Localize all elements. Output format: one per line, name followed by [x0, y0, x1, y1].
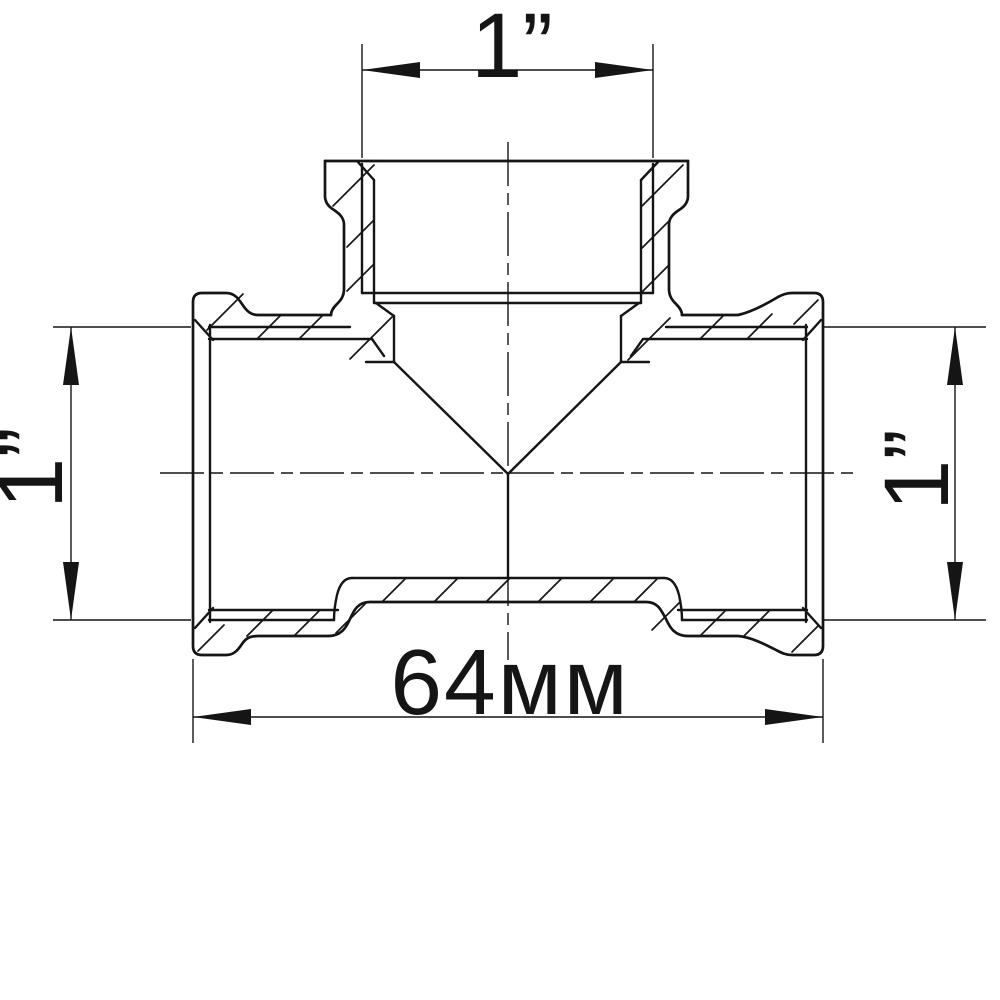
left-arrow-top — [63, 327, 79, 385]
bottom-arrow-left — [193, 709, 251, 725]
top-mouth-chamfer-left — [357, 161, 374, 180]
left-arrow-bottom — [63, 562, 79, 620]
left-dimension-label: 1” — [0, 427, 82, 509]
centerlines — [160, 142, 854, 660]
cone-right — [508, 362, 621, 474]
bottom-arrow-right — [765, 709, 823, 725]
floor-transition-left — [334, 578, 352, 620]
right-dimension-label: 1” — [866, 429, 968, 511]
top-socket-right-wall — [669, 161, 688, 315]
dimension-bottom: 64мм — [193, 630, 823, 743]
bottom-dimension-label: 64мм — [390, 630, 629, 734]
right-arrow-bottom — [947, 562, 963, 620]
floor-transition-right — [664, 578, 682, 620]
right-arrow-top — [947, 327, 963, 385]
top-dimension-label: 1” — [471, 0, 553, 97]
cone-left — [394, 362, 508, 474]
top-socket-left-wall — [325, 161, 344, 315]
drill-cone-left — [372, 339, 384, 356]
dimension-top: 1” — [362, 0, 653, 158]
top-arrow-right — [595, 62, 653, 78]
drawing-canvas: 1” 64мм 1” 1” — [0, 0, 1000, 1000]
top-mouth-chamfer-right — [641, 161, 659, 180]
top-arrow-left — [362, 62, 420, 78]
floor-chamfer-left — [376, 303, 394, 316]
tee-fitting-drawing: 1” 64мм 1” 1” — [0, 0, 1000, 1000]
floor-chamfer-right — [621, 303, 639, 316]
